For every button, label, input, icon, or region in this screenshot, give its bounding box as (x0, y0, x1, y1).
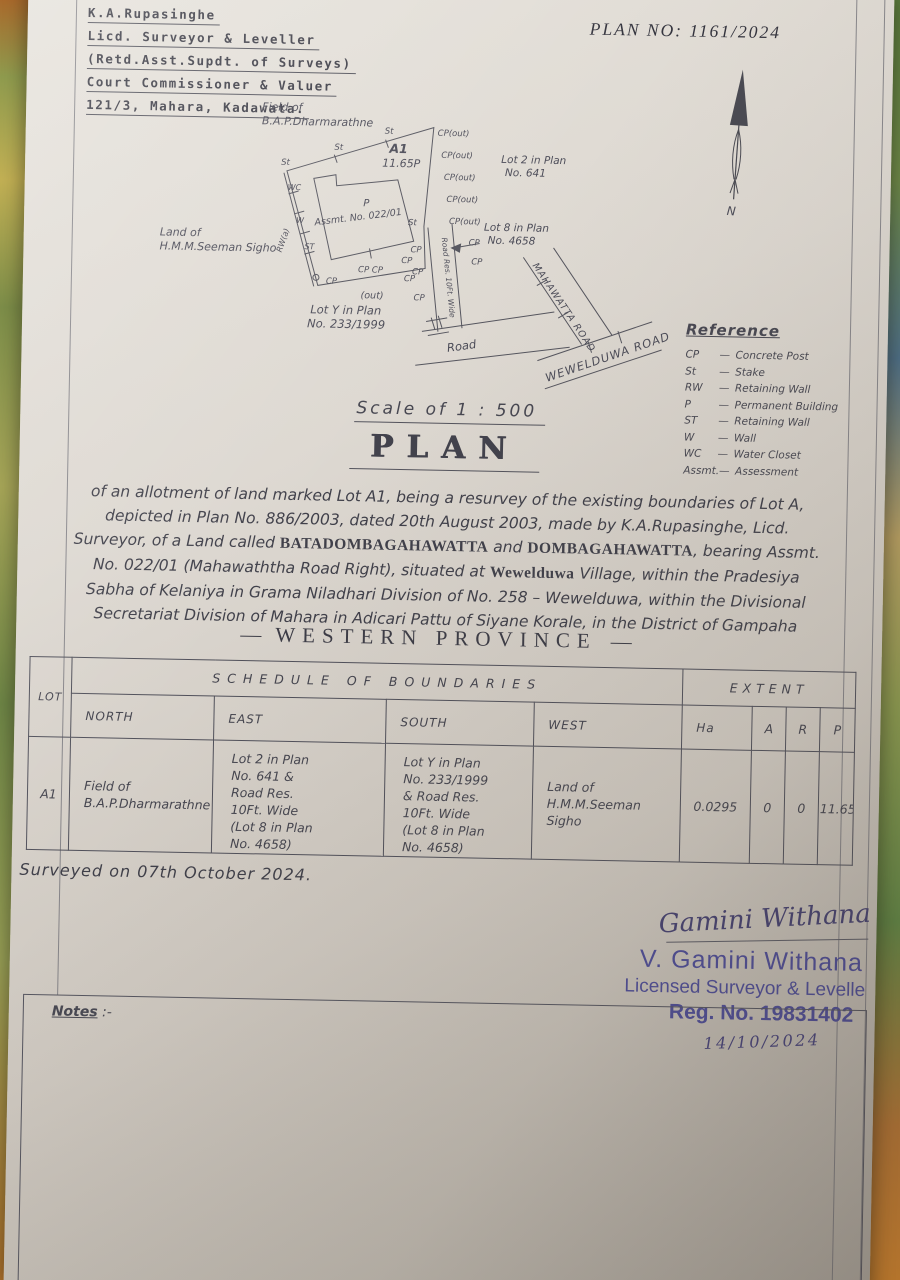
cp-out-marker: CP(out) (446, 195, 478, 206)
cell-a: 0 (749, 750, 785, 864)
stamp-surveyor-name: V. Gamini Withana (640, 945, 864, 978)
scale-text: Scale of 1 : 500 (354, 398, 545, 426)
cp-out-marker: CP(out) (449, 217, 481, 228)
reference-item: Assmt.—Assessment (683, 462, 861, 482)
col-header-p: P (819, 708, 855, 753)
cell-p: 11.65 (817, 752, 854, 866)
cp-cp-marker: CP CP (358, 265, 384, 275)
field-of-label-1: Field of (262, 100, 305, 114)
cell-east: Lot 2 in Plan No. 641 & Road Res. 10Ft. … (211, 740, 385, 856)
notes-label: Notes :- (52, 1003, 112, 1020)
wc-marker: WC (288, 183, 302, 192)
lot8-label-2: No. 4658 (488, 235, 536, 248)
ref-dash: — (719, 463, 735, 480)
surveyor-title: Licd. Surveyor & Leveller (87, 28, 319, 50)
descr-seg: and (488, 538, 527, 557)
stake-marker: St (281, 158, 291, 168)
cp-marker: CP (326, 277, 338, 287)
surveyed-date-line: Surveyed on 07th October 2024. (19, 860, 312, 885)
col-header-east: EAST (214, 696, 387, 743)
mahawatta-road-label: MAHAWATTA ROAD (530, 261, 598, 354)
land-name-bold: BATADOMBAGAHAWATTA (280, 535, 489, 556)
ref-abbr: CP (685, 346, 719, 363)
drawing-labels: Field of B.A.P.Dharmarathne St St St A1 … (157, 98, 676, 387)
col-header-ha: Ha (681, 705, 752, 750)
cell-r: 0 (783, 751, 819, 865)
table-row: A1 Field of B.A.P.Dharmarathne Lot 2 in … (26, 736, 854, 865)
cp-marker: CP (469, 238, 481, 248)
surveyor-name: K.A.Rupasinghe (88, 5, 220, 26)
col-header-west: WEST (533, 702, 682, 749)
boundaries-table: LOT SCHEDULE OF BOUNDARIES EXTENT NORTH … (26, 656, 857, 866)
ref-abbr: Assmt. (683, 462, 719, 479)
surveyor-retd: (Retd.Asst.Supdt. of Surveys) (87, 51, 356, 74)
lot2-label-2: No. 641 (505, 167, 546, 180)
ref-meaning: Permanent Building (734, 399, 838, 413)
cp-marker: CP (413, 293, 425, 303)
lotY-label-1: Lot Y in Plan (310, 302, 381, 317)
lotY-label-2: No. 233/1999 (307, 316, 385, 331)
cell-lot: A1 (26, 736, 70, 850)
ref-abbr: P (684, 396, 718, 413)
province-dash: — (596, 629, 645, 654)
plan-number: PLAN NO: 1161/2024 (590, 19, 782, 44)
stake-marker: St (408, 218, 418, 228)
cell-north: Field of B.A.P.Dharmarathne (68, 737, 213, 853)
ref-dash: — (718, 430, 734, 447)
wall-marker: W (296, 216, 305, 225)
notes-box: Notes :- (18, 994, 867, 1280)
ref-meaning: Assessment (735, 465, 798, 478)
stamp-surveyor-title: Licensed Surveyor & Levelle (624, 975, 865, 1002)
cell-south: Lot Y in Plan No. 233/1999 & Road Res. 1… (383, 743, 533, 859)
description-paragraph: of an allotment of land marked Lot A1, b… (71, 479, 822, 639)
ref-dash: — (717, 446, 733, 463)
lot-id: A1 (388, 141, 408, 156)
province-text: WESTERN PROVINCE (275, 623, 597, 653)
building-label: P (363, 198, 370, 209)
ref-abbr: WC (683, 445, 717, 462)
survey-plan-sheet: K.A.Rupasinghe Licd. Surveyor & Leveller… (4, 0, 895, 1280)
reference-title: Reference (686, 320, 864, 341)
notes-punct: :- (97, 1004, 112, 1020)
notes-word: Notes (52, 1003, 98, 1020)
ref-meaning: Retaining Wall (734, 415, 810, 428)
col-header-lot: LOT (29, 656, 73, 737)
cp-out-marker: CP(out) (438, 129, 470, 140)
cp-marker: CP (410, 245, 422, 255)
lot-area: 11.65P (382, 157, 421, 171)
ref-meaning: Wall (734, 432, 756, 444)
field-of-label-2: B.A.P.Dharmarathne (262, 114, 374, 129)
cp-marker: CP (404, 274, 416, 284)
ref-meaning: Stake (735, 366, 765, 379)
extent-header: EXTENT (682, 669, 856, 708)
stake-marker: St (385, 127, 395, 137)
cp-out-marker: CP(out) (441, 151, 473, 162)
land-name-bold: DOMBAGAHAWATTA (527, 539, 693, 559)
ref-meaning: Water Closet (733, 448, 800, 461)
ref-dash: — (718, 397, 734, 414)
ref-dash: — (719, 364, 735, 381)
cell-ha: 0.0295 (679, 749, 751, 863)
ref-abbr: W (684, 429, 718, 446)
out-label: (out) (360, 290, 383, 301)
col-header-south: SOUTH (386, 699, 535, 746)
col-header-a: A (751, 706, 786, 751)
plan-drawing: Field of B.A.P.Dharmarathne St St St A1 … (149, 98, 720, 409)
village-name-bold: Wewelduwa (490, 564, 575, 583)
surveyor-commissioner: Court Commissioner & Valuer (86, 74, 337, 97)
lot8-label-1: Lot 8 in Plan (484, 222, 549, 235)
cell-west: Land of H.M.M.Seeman Sigho (531, 746, 681, 862)
ref-abbr: ST (684, 412, 718, 429)
retaining-wall-marker: RW(a) (275, 227, 292, 253)
st-marker: ST (304, 242, 315, 251)
ref-meaning: Concrete Post (735, 349, 808, 362)
province-dash: — (226, 622, 275, 647)
cp-marker: CP (401, 256, 413, 266)
cp-marker: CP (471, 257, 483, 267)
plan-title: PLAN (349, 428, 540, 473)
lot2-label-1: Lot 2 in Plan (501, 154, 566, 167)
land-of-label-2: H.M.M.Seeman Sigho (159, 239, 276, 254)
ref-dash: — (719, 380, 735, 397)
reference-legend: Reference CP—Concrete Post St—Stake RW—R… (683, 320, 864, 481)
road-label: Road (446, 337, 478, 355)
ref-dash: — (718, 413, 734, 430)
north-arrow-head (730, 69, 752, 126)
ref-meaning: Retaining Wall (735, 382, 811, 395)
ref-dash: — (719, 347, 735, 364)
col-header-north: NORTH (71, 693, 215, 740)
ref-abbr: RW (685, 379, 719, 396)
cp-out-marker: CP(out) (444, 173, 476, 184)
col-header-r: R (785, 707, 820, 752)
ref-abbr: St (685, 363, 719, 380)
north-letter: N (726, 204, 736, 219)
land-of-label-1: Land of (160, 225, 203, 239)
assessment-label: Assmt. No. 022/01 (313, 207, 402, 229)
photo-scene: K.A.Rupasinghe Licd. Surveyor & Leveller… (0, 0, 900, 1280)
stake-marker: St (334, 143, 344, 153)
